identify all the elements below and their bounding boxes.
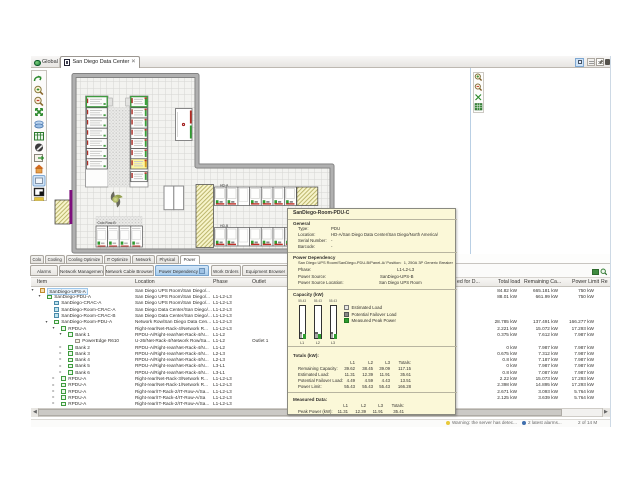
svg-text:Colo Row-B: Colo Row-B	[98, 221, 117, 225]
